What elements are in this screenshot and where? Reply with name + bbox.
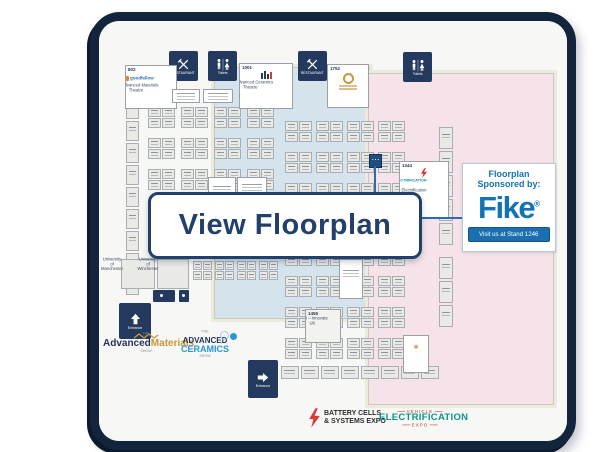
mini-facility-icon: [153, 290, 175, 302]
info-box: [339, 259, 363, 299]
circles-motif: [220, 327, 237, 345]
vehicle-electrification-expo-logo: VEHICLE ELECTRIFICATION EXPO: [379, 407, 461, 429]
restaurant-label: RESTAURANT: [301, 71, 324, 73]
toilets-label: Toilets: [413, 72, 423, 74]
sponsor-heading: Floorplan Sponsored by:: [477, 169, 540, 190]
booth-logo-text: ELECTRIFICATION: [399, 178, 432, 182]
bolt-icon: [420, 168, 428, 178]
toilets-icon: Toilets: [403, 52, 432, 82]
arrow-right-icon: [256, 371, 270, 384]
booth-number: 1455: [308, 311, 318, 314]
booth-caption: The Advanced Ceramics Theatre: [239, 80, 274, 90]
restaurant-icon: RESTAURANT: [298, 51, 327, 81]
booth-logo: [343, 73, 354, 84]
toilets-label: Toilets: [218, 71, 228, 73]
mini-facility-icon: [179, 290, 189, 302]
booth-lightbulb: ✶: [403, 335, 429, 373]
sponsor-box: Floorplan Sponsored by: Fike® Visit us a…: [462, 163, 556, 252]
entrance-right: Entrance: [248, 360, 278, 398]
booth-caption: The Advanced Materials Theatre: [125, 83, 159, 93]
spark-icon: ✶: [412, 342, 420, 352]
booth-1001: 1001 The Advanced Ceramics Theatre: [239, 63, 293, 109]
bolt-icon: [308, 408, 321, 428]
booth-number: 802: [128, 67, 136, 70]
booth-number: 1001: [242, 65, 252, 68]
view-floorplan-button[interactable]: View Floorplan: [148, 192, 422, 259]
goodfellow-logo: goodfellow: [125, 73, 177, 83]
advanced-ceramics-show-logo: THE ADVANCED CERAMICS SHOW: [169, 327, 241, 358]
booth-1752: 1752: [327, 64, 369, 108]
toilets-icon: Toilets: [208, 51, 237, 81]
booth-number: 1752: [330, 66, 340, 69]
info-box: [203, 89, 233, 103]
page: RESTAURANT Toilets RESTAURANT Toilets 80…: [0, 0, 600, 452]
battery-cells-expo-logo: BATTERY CELLS & SYSTEMS EXPO: [308, 408, 386, 428]
entrance-label: Entrance: [128, 326, 142, 328]
booth-802: 802 goodfellow The Advanced Materials Th…: [125, 65, 177, 109]
arrow-up-icon: [129, 312, 142, 326]
fike-logo[interactable]: Fike®: [478, 192, 540, 223]
booth-1455: 1455 UKRI – Innovate UK: [305, 309, 341, 343]
booth-logo: [261, 71, 272, 79]
booth-number: 1344: [402, 163, 412, 166]
info-box: [172, 89, 200, 103]
booth-caption: UKRI – Innovate UK: [305, 316, 329, 326]
entrance-label: Entrance: [256, 384, 270, 386]
booth-university-2: University of Winchester: [157, 259, 189, 289]
sponsor-cta-button[interactable]: Visit us at Stand 1246: [468, 227, 550, 242]
